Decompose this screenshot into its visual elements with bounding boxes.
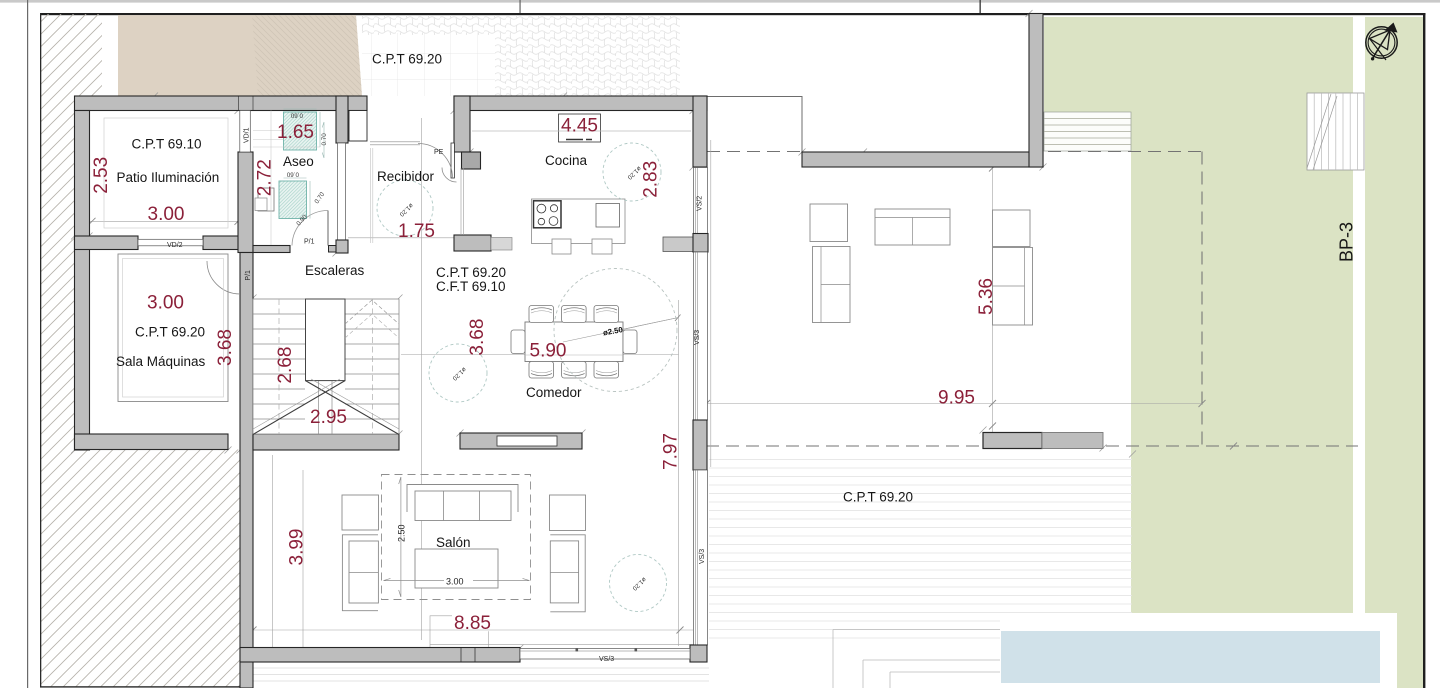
svg-text:C.P.T 69.20: C.P.T 69.20 [372, 52, 442, 67]
svg-text:5.90: 5.90 [530, 341, 567, 362]
svg-text:3.00: 3.00 [446, 577, 464, 587]
svg-text:2.68: 2.68 [275, 347, 296, 384]
svg-text:C.P.T 69.20: C.P.T 69.20 [135, 325, 205, 340]
svg-text:C.F.T 69.10: C.F.T 69.10 [436, 279, 506, 294]
svg-text:VD/1: VD/1 [244, 127, 251, 143]
svg-text:VS/3: VS/3 [699, 549, 706, 564]
svg-text:0.60: 0.60 [286, 171, 299, 178]
svg-text:Salón: Salón [436, 535, 471, 550]
svg-text:PE: PE [434, 149, 444, 156]
svg-text:2.72: 2.72 [255, 159, 276, 196]
svg-text:VS/2: VS/2 [697, 196, 704, 211]
svg-text:2.50: 2.50 [397, 524, 407, 542]
svg-text:3.68: 3.68 [467, 319, 488, 356]
svg-text:BP-3: BP-3 [1337, 222, 1357, 262]
svg-text:3.00: 3.00 [148, 204, 185, 225]
svg-text:Cocina: Cocina [545, 153, 588, 168]
svg-text:3.68: 3.68 [215, 329, 236, 366]
svg-text:Escaleras: Escaleras [305, 263, 365, 278]
svg-text:C.P.T 69.20: C.P.T 69.20 [436, 265, 506, 280]
svg-text:P/1: P/1 [304, 239, 315, 246]
svg-text:Recibidor: Recibidor [377, 169, 435, 184]
svg-text:7.97: 7.97 [661, 433, 682, 470]
svg-text:8.85: 8.85 [454, 613, 491, 634]
svg-text:Comedor: Comedor [526, 385, 582, 400]
svg-text:0.70: 0.70 [321, 133, 328, 146]
svg-text:Aseo: Aseo [283, 154, 314, 169]
svg-text:VS/3: VS/3 [599, 656, 614, 663]
svg-text:3.00: 3.00 [147, 293, 184, 314]
svg-text:1.75: 1.75 [398, 221, 435, 242]
svg-text:3.99: 3.99 [287, 529, 308, 566]
svg-text:1.65: 1.65 [277, 122, 314, 143]
svg-text:C.P.T 69.10: C.P.T 69.10 [132, 137, 202, 152]
svg-text:VD/2: VD/2 [167, 242, 183, 249]
svg-text:5.36: 5.36 [976, 278, 997, 315]
svg-text:C.P.T 69.20: C.P.T 69.20 [843, 490, 913, 505]
svg-text:2.83: 2.83 [641, 161, 662, 198]
svg-text:9.95: 9.95 [938, 388, 975, 409]
svg-text:0.60: 0.60 [290, 112, 303, 119]
svg-text:P/1: P/1 [245, 270, 252, 281]
svg-text:Patio Iluminación: Patio Iluminación [117, 170, 220, 185]
svg-text:VS/3: VS/3 [694, 330, 701, 345]
svg-text:4.45: 4.45 [561, 116, 598, 137]
svg-text:2.53: 2.53 [91, 157, 112, 194]
svg-text:2.95: 2.95 [310, 407, 347, 428]
svg-text:Sala Máquinas: Sala Máquinas [116, 354, 206, 369]
